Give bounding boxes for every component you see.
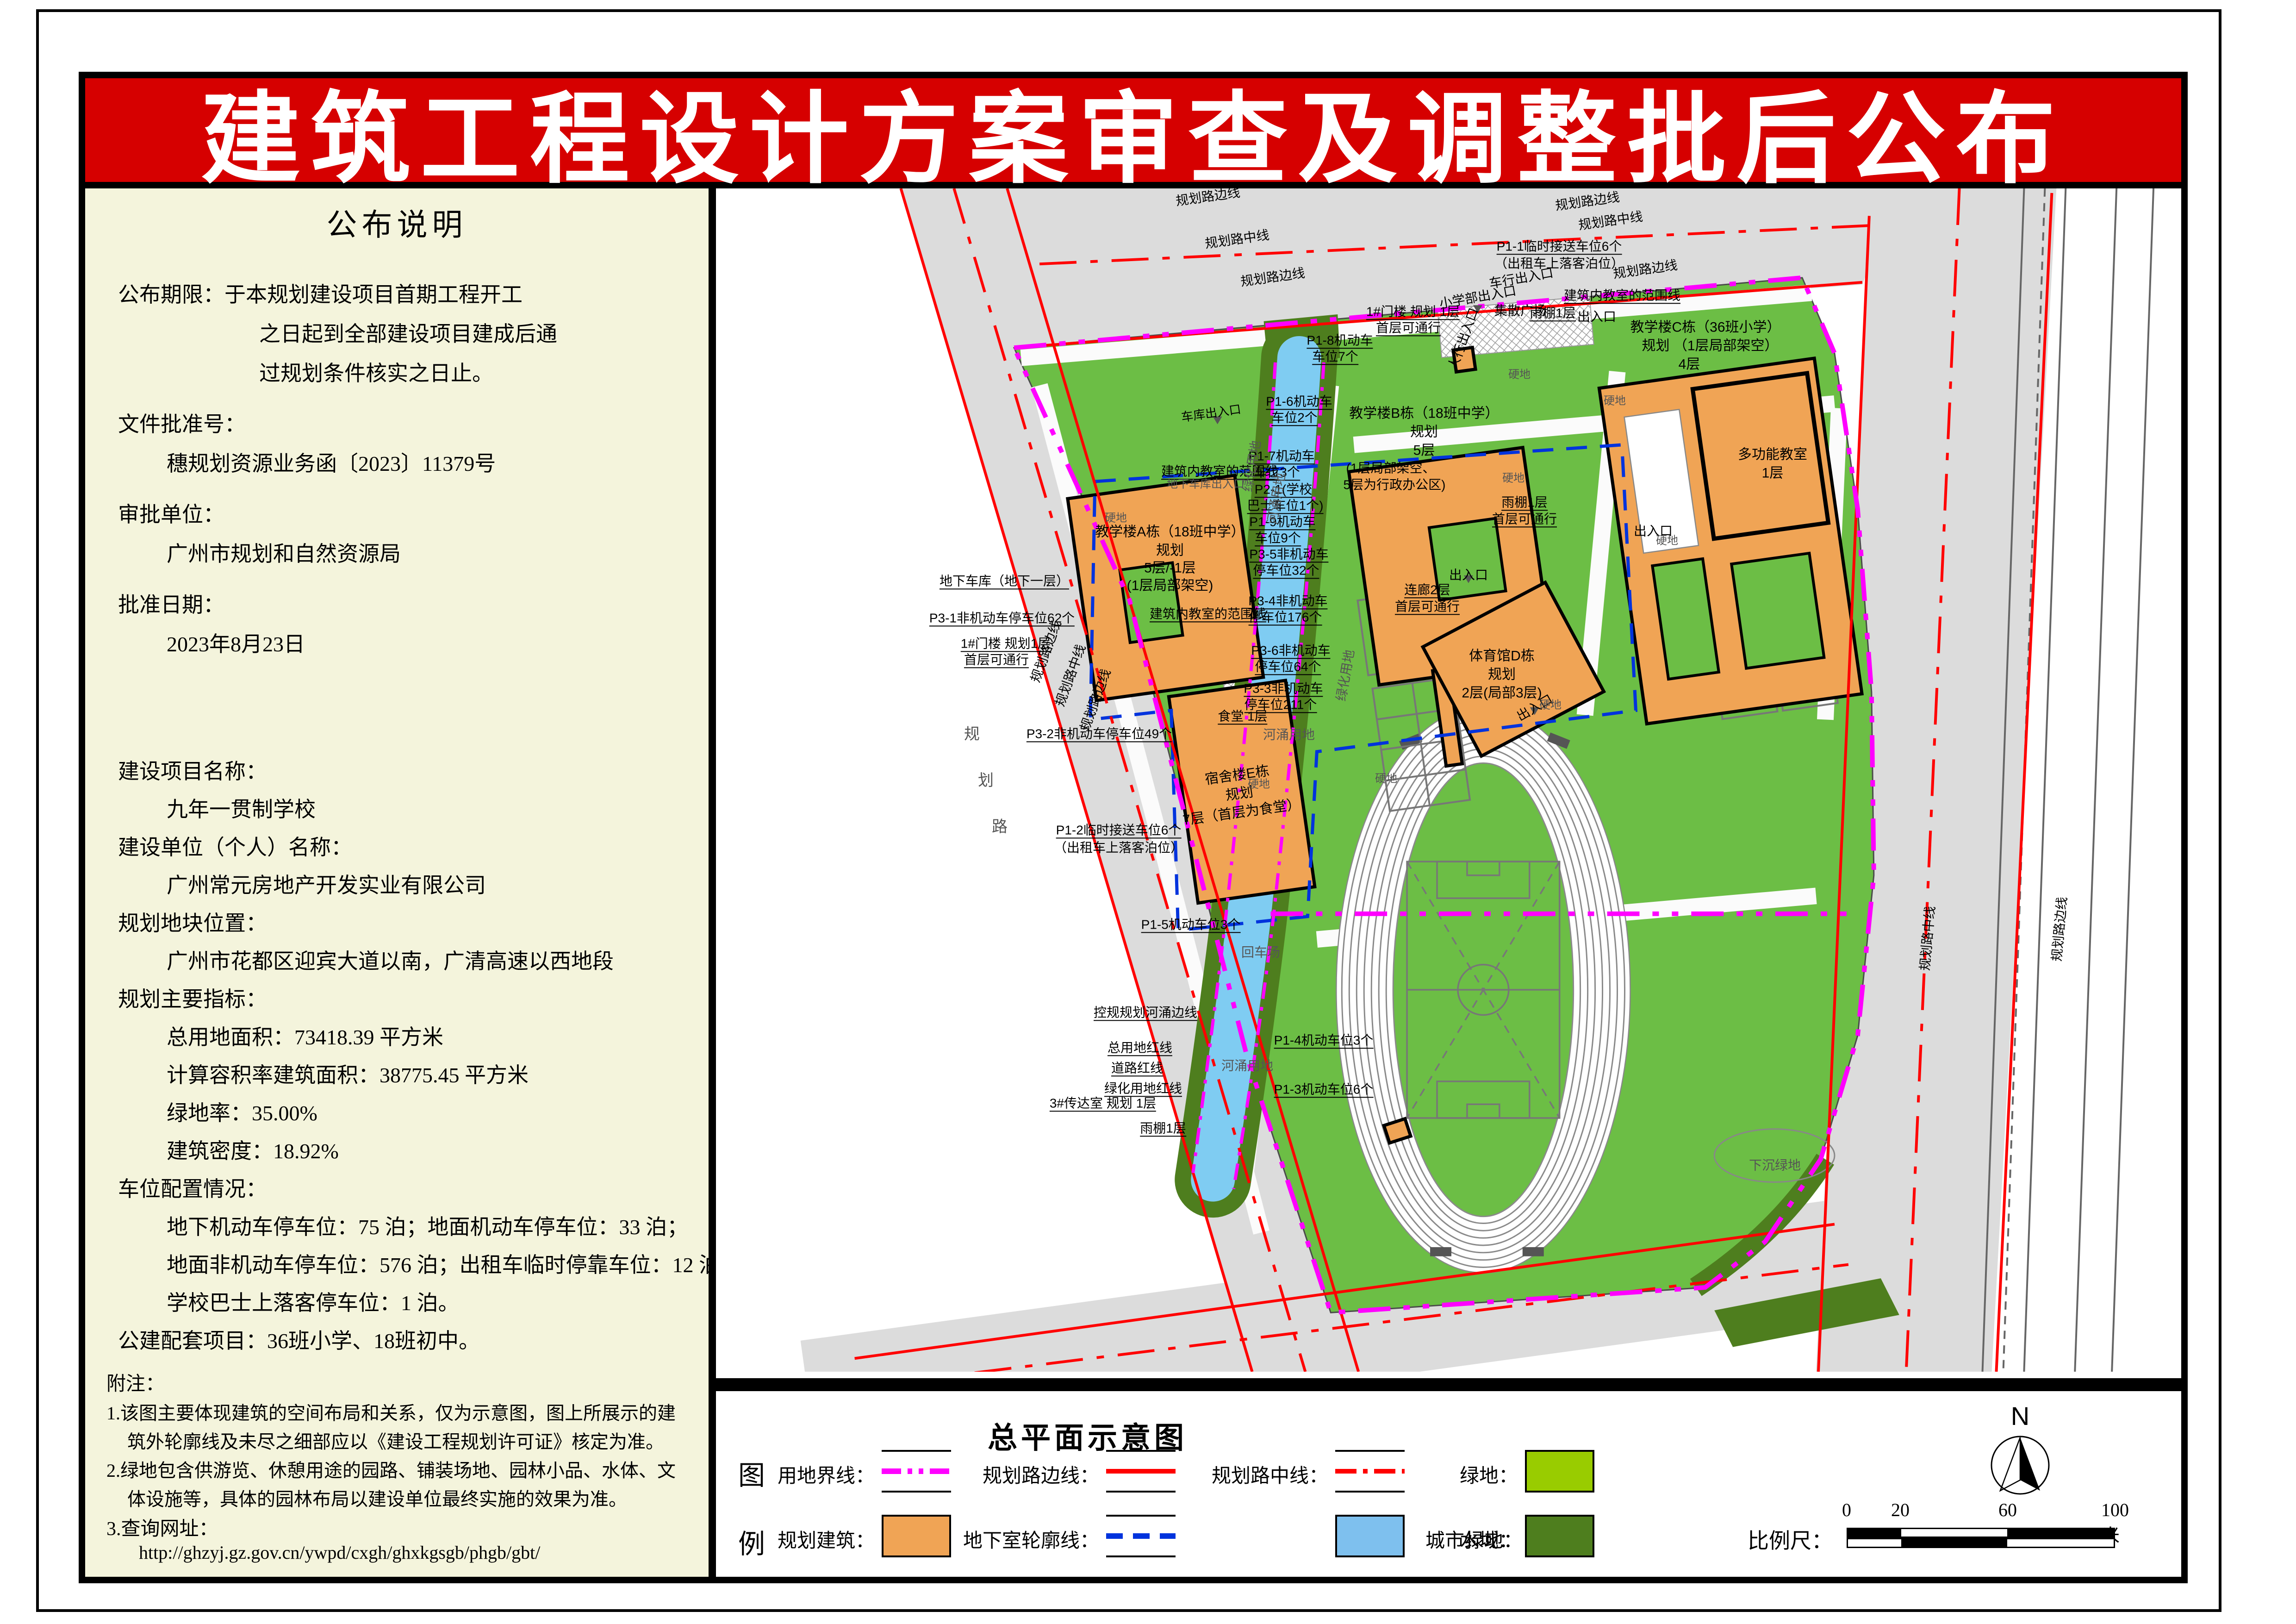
panel-line: 体设施等，具体的园林布局以建设单位最终实施的效果为准。 bbox=[127, 1484, 627, 1511]
panel-line: 九年一贯制学校 bbox=[167, 793, 316, 823]
panel-line: 2.绿地包含供游览、休憩用途的园路、铺装场地、园林小品、水体、文 bbox=[106, 1455, 676, 1482]
scale-bar-row bbox=[1847, 1538, 2115, 1548]
panel-line: 2023年8月23日 bbox=[167, 627, 305, 658]
legend-swatch-green-space bbox=[1525, 1450, 1594, 1493]
railway-line bbox=[2112, 188, 2153, 1372]
legend-swatch-planned-building bbox=[882, 1515, 951, 1557]
legend-swatch-road-edge bbox=[1106, 1450, 1176, 1493]
scale-tick: 60 bbox=[1998, 1499, 2017, 1521]
panel-line: 附注： bbox=[106, 1368, 165, 1396]
panel-line: 公布期限：于本规划建设项目首期工程开工 bbox=[118, 278, 523, 308]
legend-label: 绿地： bbox=[1365, 1460, 1518, 1488]
panel-line: 公建配套项目：36班小学、18班初中。 bbox=[118, 1324, 480, 1355]
panel-line: 绿地率：35.00% bbox=[167, 1096, 317, 1127]
page-title: 建筑工程设计方案审查及调整批后公布 bbox=[201, 58, 2066, 202]
title-banner: 建筑工程设计方案审查及调整批后公布 bbox=[79, 72, 2188, 188]
panel-line: 计算容积率建筑面积：38775.45 平方米 bbox=[167, 1058, 529, 1089]
scale-ticks: 0 20 60 100米 bbox=[1847, 1499, 2115, 1521]
panel-line: 筑外轮廓线及未尽之细部应以《建设工程规划许可证》核定为准。 bbox=[127, 1427, 664, 1454]
scale-bar-row bbox=[1847, 1528, 2115, 1538]
panel-line: 规划主要指标： bbox=[118, 982, 267, 1013]
legend-label: 规划路中线： bbox=[1176, 1460, 1328, 1488]
panel-line: 3.查询网址： bbox=[106, 1513, 218, 1541]
scale-label: 比例尺： bbox=[1712, 1524, 1833, 1555]
panel-line: 地下机动车停车位：75 泊；地面机动车停车位：33 泊； bbox=[167, 1210, 688, 1241]
north-arrow: N bbox=[1988, 1403, 2053, 1500]
panel-line: 建筑密度：18.92% bbox=[167, 1134, 339, 1165]
panel-line: 车位配置情况： bbox=[118, 1172, 267, 1203]
panel-line: 广州常元房地产开发实业有限公司 bbox=[167, 868, 486, 899]
building-A-teaching bbox=[1068, 475, 1263, 700]
site-plan-svg bbox=[716, 188, 2181, 1372]
panel-line: 建设单位（个人）名称： bbox=[118, 831, 352, 861]
panel-line: 广州市花都区迎宾大道以南，广清高速以西地段 bbox=[167, 944, 614, 975]
panel-line: 审批单位： bbox=[118, 498, 224, 528]
panel-line: 建设项目名称： bbox=[118, 755, 267, 785]
panel-line: 文件批准号： bbox=[118, 407, 246, 438]
panel-line: http://ghzyj.gz.gov.cn/ywpd/cxgh/ghxkgsg… bbox=[139, 1542, 540, 1563]
panel-line: 广州市规划和自然资源局 bbox=[167, 537, 401, 568]
building-C-teaching bbox=[1599, 358, 1862, 724]
gatehouse-1 bbox=[1453, 348, 1475, 372]
legend-swatch-basement-outline bbox=[1106, 1515, 1176, 1557]
north-letter: N bbox=[2011, 1403, 2029, 1430]
legend-label: 地下室轮廓线： bbox=[946, 1525, 1099, 1553]
panel-line: 规划地块位置： bbox=[118, 906, 267, 937]
legend-label: 用地界线： bbox=[722, 1460, 875, 1488]
legend-swatch-city-green bbox=[1525, 1515, 1594, 1557]
panel-line: 批准日期： bbox=[118, 588, 224, 618]
site-plan-map bbox=[709, 188, 2188, 1385]
running-track bbox=[1336, 707, 1630, 1273]
announcement-poster: 建筑工程设计方案审查及调整批后公布 公布说明 公布期限：于本规划建设项目首期工程… bbox=[0, 0, 2296, 1624]
panel-line: 总用地面积：73418.39 平方米 bbox=[167, 1020, 443, 1051]
scale-tick: 20 bbox=[1891, 1499, 1910, 1521]
railway-line bbox=[2075, 188, 2116, 1372]
legend-map-title: 总平面示意图 bbox=[902, 1414, 1273, 1457]
legend-swatch-land-boundary bbox=[882, 1450, 951, 1493]
panel-line: 1.该图主要体现建筑的空间布局和关系，仅为示意图，图上所展示的建 bbox=[106, 1398, 676, 1425]
panel-line: 过规划条件核实之日止。 bbox=[259, 356, 493, 387]
scale-tick: 0 bbox=[1842, 1499, 1851, 1521]
panel-line: 地面非机动车停车位：576 泊；出租车临时停靠车位：12 泊； bbox=[167, 1248, 741, 1279]
legend-label: 城市绿地： bbox=[1370, 1525, 1523, 1553]
legend-label: 规划路边线： bbox=[946, 1460, 1099, 1488]
legend-label: 规划建筑： bbox=[722, 1525, 875, 1553]
panel-heading: 公布说明 bbox=[79, 200, 715, 244]
panel-line: 之日起到全部建设项目建成后通 bbox=[259, 317, 557, 348]
panel-line: 学校巴士上落客停车位：1 泊。 bbox=[167, 1286, 460, 1317]
panel-line: 穗规划资源业务函〔2023〕11379号 bbox=[167, 447, 496, 477]
